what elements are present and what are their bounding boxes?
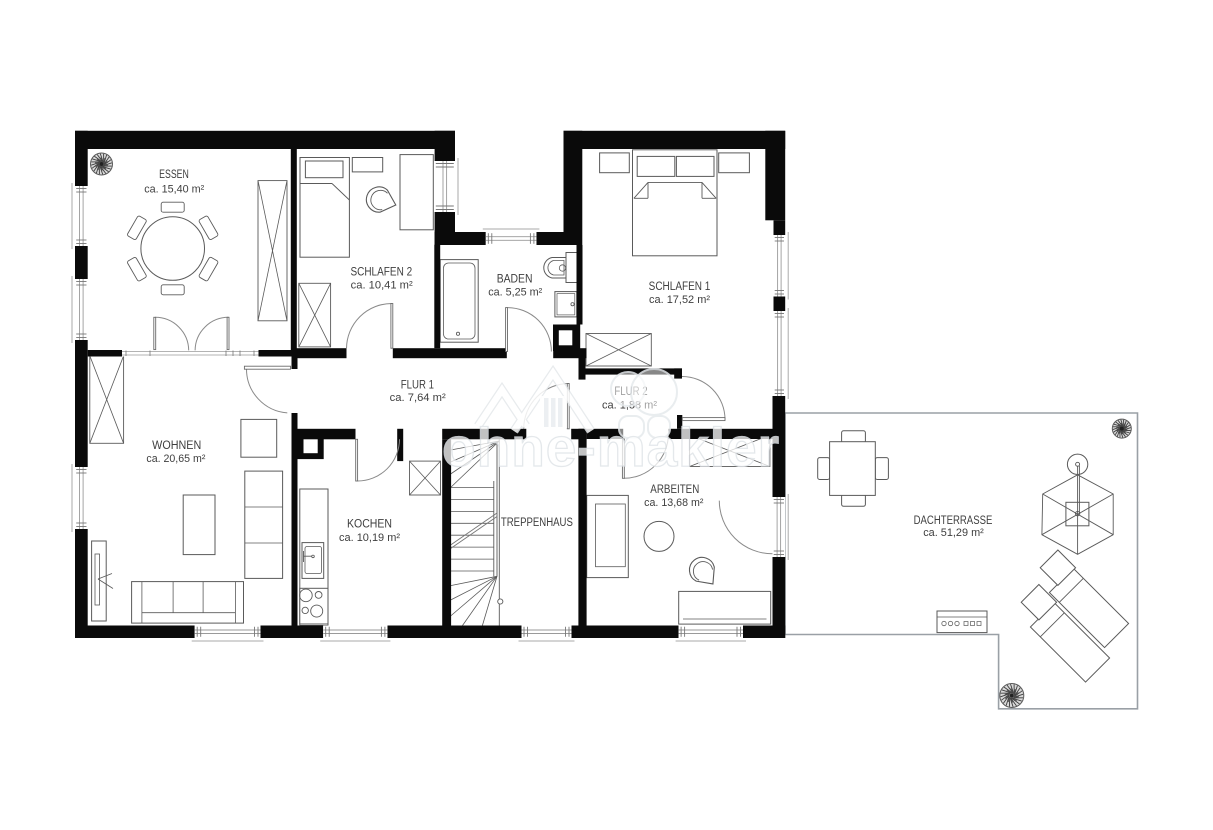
svg-text:KOCHEN: KOCHEN (347, 518, 392, 530)
svg-text:ca. 51,29 m²: ca. 51,29 m² (923, 527, 984, 539)
svg-text:SCHLAFEN 1: SCHLAFEN 1 (649, 281, 711, 293)
svg-text:ca. 10,19 m²: ca. 10,19 m² (339, 532, 400, 544)
svg-text:ca. 5,25 m²: ca. 5,25 m² (488, 287, 542, 299)
svg-text:ESSEN: ESSEN (159, 169, 189, 181)
svg-text:FLUR 1: FLUR 1 (401, 380, 434, 392)
svg-text:ca. 17,52 m²: ca. 17,52 m² (649, 294, 710, 306)
svg-text:ca. 20,65 m²: ca. 20,65 m² (146, 453, 205, 465)
svg-text:TREPPENHAUS: TREPPENHAUS (501, 517, 573, 529)
svg-text:DACHTERRASSE: DACHTERRASSE (914, 515, 993, 527)
svg-text:ca. 7,64 m²: ca. 7,64 m² (390, 392, 446, 404)
svg-text:ca. 10,41 m²: ca. 10,41 m² (351, 279, 413, 291)
svg-text:BADEN: BADEN (497, 273, 533, 285)
svg-text:ca. 13,68 m²: ca. 13,68 m² (644, 497, 704, 509)
svg-text:ohne-makler: ohne-makler (442, 416, 780, 478)
svg-text:ARBEITEN: ARBEITEN (650, 484, 699, 496)
svg-text:SCHLAFEN 2: SCHLAFEN 2 (350, 267, 412, 279)
svg-text:WOHNEN: WOHNEN (152, 440, 201, 452)
svg-text:ca. 15,40 m²: ca. 15,40 m² (144, 183, 204, 195)
